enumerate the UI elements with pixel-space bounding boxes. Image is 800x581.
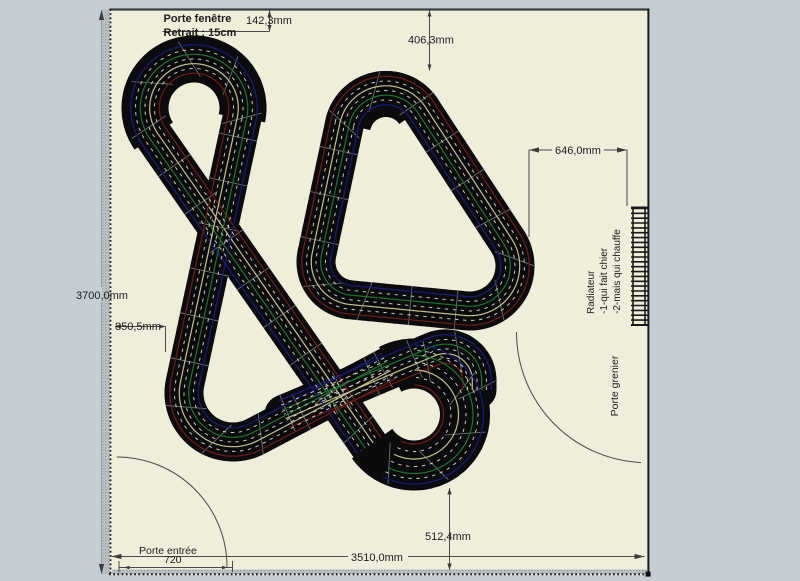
svg-text:142,3mm: 142,3mm [246, 15, 292, 27]
svg-text:512,4mm: 512,4mm [425, 531, 471, 543]
svg-text:646,0mm: 646,0mm [555, 145, 601, 157]
svg-text:406,3mm: 406,3mm [408, 35, 454, 47]
svg-text:Retrait : 15cm: Retrait : 15cm [164, 27, 237, 39]
svg-text:Porte fenêtre: Porte fenêtre [164, 13, 232, 25]
svg-text:Porte grenier: Porte grenier [609, 355, 621, 416]
svg-text:850,5mm: 850,5mm [115, 321, 161, 333]
svg-text:3700,0mm: 3700,0mm [76, 290, 128, 302]
svg-text:-2-mais qui chauffe: -2-mais qui chauffe [612, 229, 623, 314]
svg-text:3510,0mm: 3510,0mm [351, 552, 403, 564]
svg-text:-1-qui fait chier: -1-qui fait chier [599, 247, 610, 314]
svg-text:Porte entrée: Porte entrée [139, 545, 197, 557]
svg-text:Radiateur: Radiateur [586, 270, 597, 314]
